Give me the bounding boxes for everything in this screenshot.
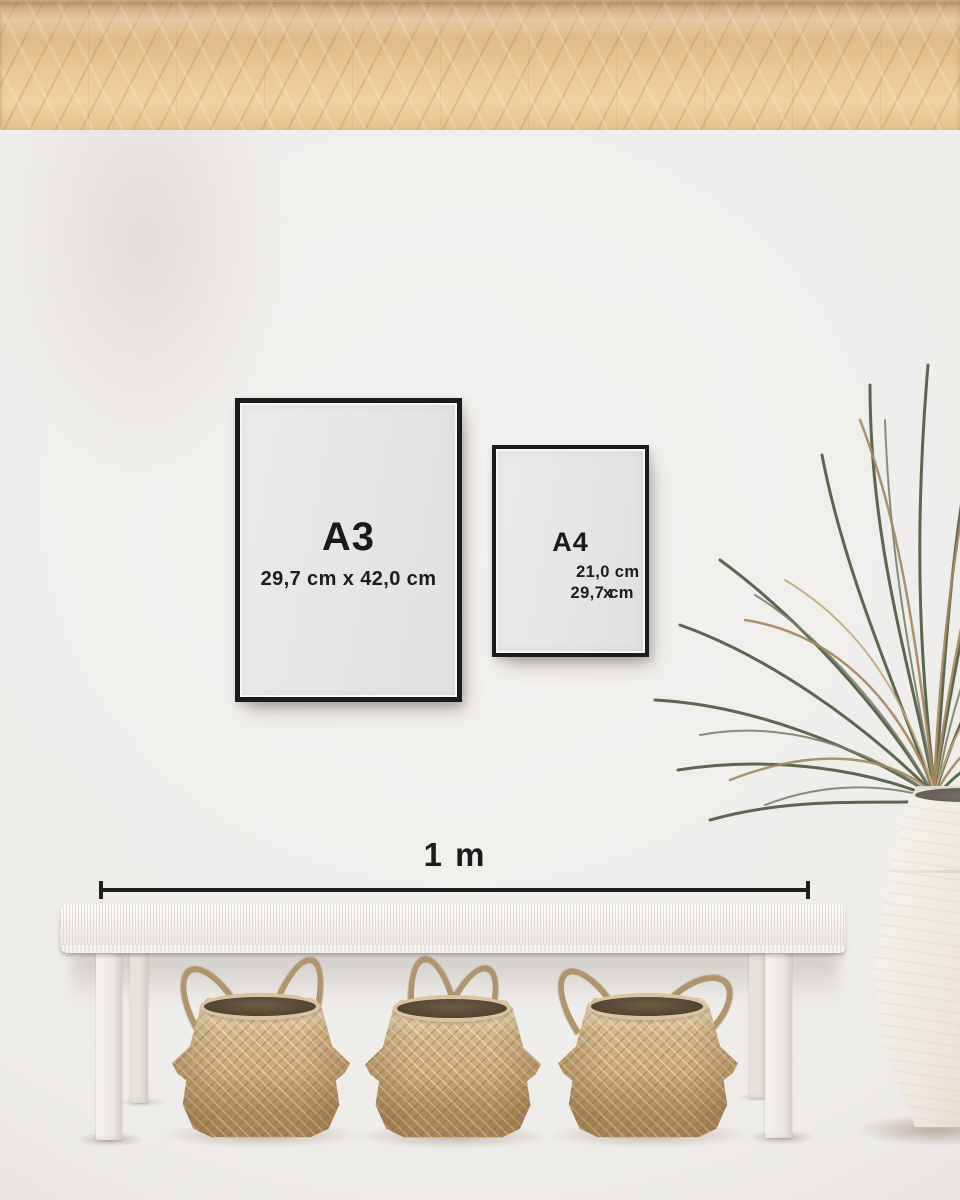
floor-vase — [862, 786, 960, 1134]
frame-a3-paper: A3 29,7 cm x 42,0 cm — [240, 403, 457, 697]
basket-rim — [393, 995, 511, 1022]
scale-bar-line — [101, 888, 808, 892]
bench-woven-seat — [60, 904, 845, 953]
floor-light-reflection — [0, 0, 960, 40]
frame-a3: A3 29,7 cm x 42,0 cm — [235, 398, 462, 702]
basket-left — [172, 998, 350, 1140]
palm-plant — [560, 325, 960, 835]
basket-middle — [365, 1000, 541, 1140]
scene-canvas: A3 29,7 cm x 42,0 cm A4 21,0 cm x 29,7 c… — [0, 0, 960, 1200]
bench-leg-front-left — [96, 948, 122, 1140]
frame-a3-size-label: A3 — [322, 515, 375, 560]
basket-rim — [200, 993, 319, 1020]
scale-bar-label: 1 m — [424, 836, 487, 874]
bench-leg-back-left — [130, 948, 148, 1103]
bench-leg-front-right — [765, 948, 792, 1138]
frame-a3-dimensions: 29,7 cm x 42,0 cm — [261, 568, 437, 591]
basket-right — [558, 998, 738, 1140]
basket-rim — [587, 993, 708, 1020]
